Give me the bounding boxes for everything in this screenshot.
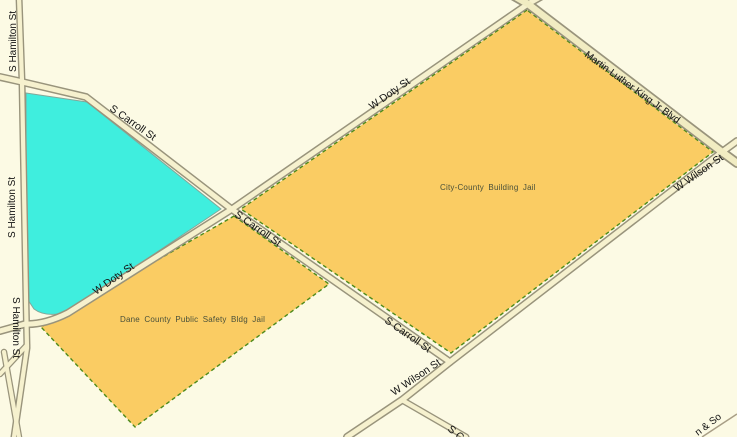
map-canvas[interactable]: S Hamilton St S Hamilton St S Hamilton S… bbox=[0, 0, 737, 437]
label-s-hamilton-st-3: S Hamilton St bbox=[10, 297, 21, 358]
label-dane-county-public-safety-jail: Dane County Public Safety Bldg Jail bbox=[120, 315, 265, 324]
label-city-county-building-jail: City-County Building Jail bbox=[440, 183, 536, 192]
label-s-hamilton-st-1: S Hamilton St bbox=[8, 11, 19, 72]
map-viewport[interactable]: S Hamilton St S Hamilton St S Hamilton S… bbox=[0, 0, 737, 437]
label-s-hamilton-st-2: S Hamilton St bbox=[7, 177, 18, 238]
